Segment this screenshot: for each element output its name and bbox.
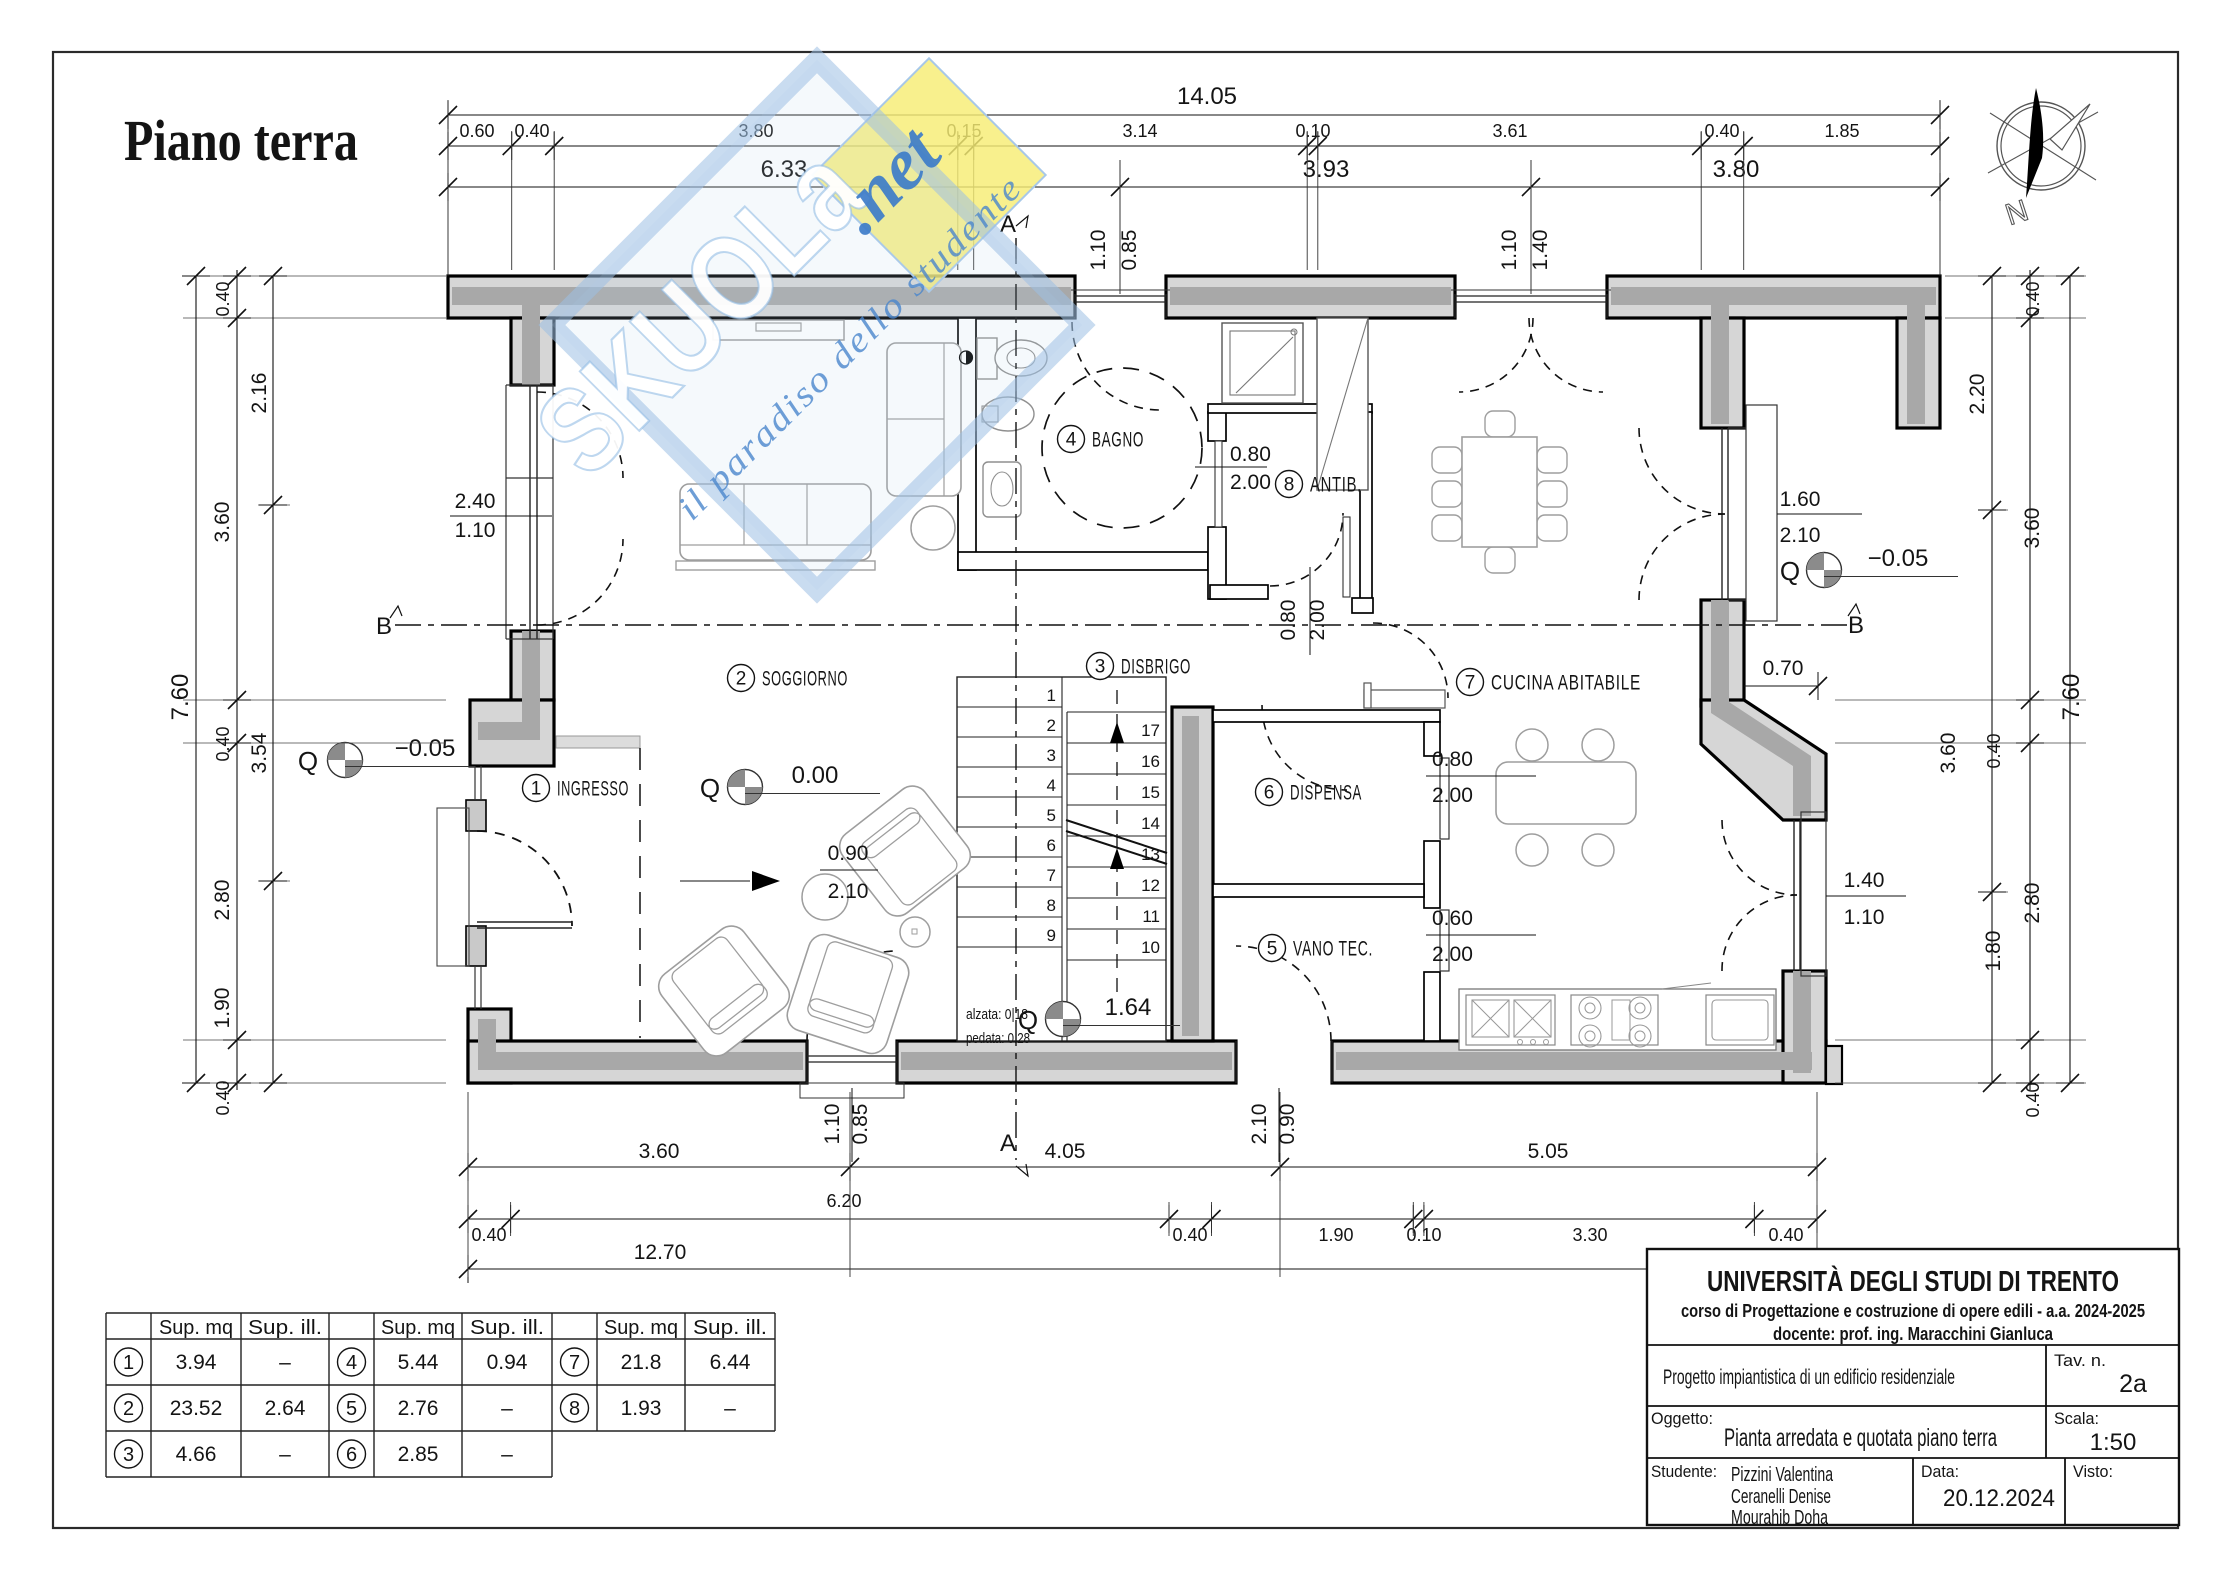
svg-text:14: 14 xyxy=(1141,814,1160,833)
svg-text:2.10: 2.10 xyxy=(828,880,869,903)
svg-text:1.60: 1.60 xyxy=(1780,488,1821,511)
svg-text:SOGGIORNO: SOGGIORNO xyxy=(762,668,848,691)
svg-text:Pizzini Valentina: Pizzini Valentina xyxy=(1731,1464,1834,1486)
svg-text:1.90: 1.90 xyxy=(1318,1225,1353,1245)
svg-text:2.76: 2.76 xyxy=(398,1397,439,1420)
svg-text:6: 6 xyxy=(1047,836,1056,855)
svg-text:4.66: 4.66 xyxy=(176,1443,217,1466)
svg-text:0.94: 0.94 xyxy=(487,1351,528,1374)
svg-text:2a: 2a xyxy=(2119,1370,2147,1398)
svg-text:4.05: 4.05 xyxy=(1045,1140,1086,1163)
svg-text:Q: Q xyxy=(1780,556,1800,586)
svg-text:1.90: 1.90 xyxy=(211,988,234,1029)
svg-text:1.40: 1.40 xyxy=(1529,230,1552,271)
svg-text:Q: Q xyxy=(298,746,318,776)
svg-text:0.40: 0.40 xyxy=(1984,733,2004,768)
svg-text:Data:: Data: xyxy=(1921,1462,1959,1481)
svg-text:5: 5 xyxy=(346,1398,357,1420)
svg-text:21.8: 21.8 xyxy=(621,1351,662,1374)
svg-text:3: 3 xyxy=(1047,746,1056,765)
svg-text:0.40: 0.40 xyxy=(2023,281,2043,316)
svg-text:2: 2 xyxy=(736,669,747,690)
svg-text:0.40: 0.40 xyxy=(1172,1225,1207,1245)
svg-text:0.40: 0.40 xyxy=(471,1225,506,1245)
svg-text:Oggetto:: Oggetto: xyxy=(1651,1409,1713,1428)
svg-text:–: – xyxy=(724,1397,736,1420)
svg-text:–: – xyxy=(501,1397,513,1420)
svg-text:0.00: 0.00 xyxy=(792,762,839,789)
svg-text:12: 12 xyxy=(1141,876,1160,895)
svg-text:Progetto impiantistica di un e: Progetto impiantistica di un edificio re… xyxy=(1663,1366,1955,1389)
svg-text:B: B xyxy=(376,613,392,640)
svg-text:Visto:: Visto: xyxy=(2073,1462,2113,1481)
svg-text:0.70: 0.70 xyxy=(1763,657,1804,680)
svg-text:2.10: 2.10 xyxy=(1780,524,1821,547)
svg-text:7: 7 xyxy=(1465,673,1476,694)
svg-text:VANO TEC.: VANO TEC. xyxy=(1293,938,1373,961)
svg-text:2.85: 2.85 xyxy=(398,1443,439,1466)
svg-text:2.00: 2.00 xyxy=(1230,471,1271,494)
svg-text:ANTIB.: ANTIB. xyxy=(1310,474,1362,497)
svg-text:0.85: 0.85 xyxy=(1118,230,1141,271)
svg-text:5.44: 5.44 xyxy=(398,1351,439,1374)
svg-text:2.16: 2.16 xyxy=(248,373,271,414)
svg-text:alzata: 0|18: alzata: 0|18 xyxy=(966,1006,1028,1023)
svg-text:3.94: 3.94 xyxy=(176,1351,217,1374)
svg-text:1.85: 1.85 xyxy=(1824,121,1859,141)
svg-text:20.12.2024: 20.12.2024 xyxy=(1943,1485,2055,1512)
svg-text:1.10: 1.10 xyxy=(1844,906,1885,929)
svg-text:12.70: 12.70 xyxy=(634,1241,687,1264)
svg-text:–: – xyxy=(279,1351,291,1374)
svg-text:DISBRIGO: DISBRIGO xyxy=(1121,656,1191,679)
svg-text:23.52: 23.52 xyxy=(170,1397,223,1420)
svg-text:1:50: 1:50 xyxy=(2090,1429,2137,1456)
svg-text:0.40: 0.40 xyxy=(2023,1082,2043,1117)
svg-text:0.80: 0.80 xyxy=(1230,443,1271,466)
svg-text:0.85: 0.85 xyxy=(849,1104,872,1145)
svg-text:Sup. mq: Sup. mq xyxy=(381,1317,455,1339)
svg-text:3: 3 xyxy=(123,1444,134,1466)
svg-text:Sup. ill.: Sup. ill. xyxy=(470,1317,544,1339)
svg-text:1: 1 xyxy=(1047,686,1056,705)
svg-text:2.10: 2.10 xyxy=(1248,1104,1271,1145)
svg-text:3.61: 3.61 xyxy=(1492,121,1527,141)
svg-text:0.40: 0.40 xyxy=(1768,1225,1803,1245)
svg-text:3.80: 3.80 xyxy=(1713,156,1760,183)
svg-text:0.90: 0.90 xyxy=(1276,1104,1299,1145)
svg-text:1: 1 xyxy=(531,779,542,800)
svg-text:4: 4 xyxy=(346,1352,357,1374)
svg-text:2.20: 2.20 xyxy=(1966,374,1989,415)
svg-text:BAGNO: BAGNO xyxy=(1092,429,1144,452)
svg-text:A: A xyxy=(1000,1130,1016,1157)
svg-text:Sup. ill.: Sup. ill. xyxy=(693,1317,767,1339)
svg-text:DISPENSA: DISPENSA xyxy=(1290,782,1362,805)
svg-text:Scala:: Scala: xyxy=(2054,1409,2099,1428)
svg-text:2.80: 2.80 xyxy=(211,880,234,921)
svg-text:1.40: 1.40 xyxy=(1844,869,1885,892)
svg-text:UNIVERSITÀ DEGLI STUDI DI TRE: UNIVERSITÀ DEGLI STUDI DI TRENTO xyxy=(1707,1264,2119,1298)
svg-text:Sup. mq: Sup. mq xyxy=(604,1317,678,1339)
svg-text:Studente:: Studente: xyxy=(1651,1462,1717,1481)
svg-text:5.05: 5.05 xyxy=(1528,1140,1569,1163)
svg-text:1.10: 1.10 xyxy=(455,519,496,542)
svg-text:4: 4 xyxy=(1047,776,1056,795)
svg-text:7: 7 xyxy=(1047,866,1056,885)
svg-text:11: 11 xyxy=(1142,907,1160,926)
svg-text:0.90: 0.90 xyxy=(828,842,869,865)
svg-text:docente: prof. ing. Maracchini: docente: prof. ing. Maracchini Gianluca xyxy=(1773,1324,2054,1344)
svg-text:−0.05: −0.05 xyxy=(1868,545,1929,572)
svg-text:1: 1 xyxy=(123,1352,134,1374)
svg-text:1.93: 1.93 xyxy=(621,1397,662,1420)
svg-text:0.10: 0.10 xyxy=(1295,121,1330,141)
svg-text:0.60: 0.60 xyxy=(1432,907,1473,930)
svg-text:3.54: 3.54 xyxy=(248,732,271,773)
svg-text:2.00: 2.00 xyxy=(1432,784,1473,807)
svg-text:0.40: 0.40 xyxy=(213,1080,233,1115)
svg-text:0.40: 0.40 xyxy=(514,121,549,141)
svg-text:8: 8 xyxy=(1284,475,1295,496)
svg-text:3.93: 3.93 xyxy=(1303,156,1350,183)
svg-text:7.60: 7.60 xyxy=(167,674,194,721)
svg-text:Sup. mq: Sup. mq xyxy=(159,1317,233,1339)
svg-text:CUCINA ABITABILE: CUCINA ABITABILE xyxy=(1491,672,1641,695)
svg-text:16: 16 xyxy=(1141,752,1160,771)
svg-text:2: 2 xyxy=(1047,716,1056,735)
svg-text:9: 9 xyxy=(1047,926,1056,945)
svg-text:B: B xyxy=(1848,612,1864,639)
svg-text:8: 8 xyxy=(569,1398,580,1420)
svg-text:7.60: 7.60 xyxy=(2058,674,2085,721)
svg-text:Ceranelli Denise: Ceranelli Denise xyxy=(1731,1486,1831,1508)
svg-text:3.60: 3.60 xyxy=(2021,508,2044,549)
svg-text:0.60: 0.60 xyxy=(459,121,494,141)
svg-text:0.80: 0.80 xyxy=(1277,600,1300,641)
svg-text:2.40: 2.40 xyxy=(455,490,496,513)
svg-text:8: 8 xyxy=(1047,896,1056,915)
svg-text:INGRESSO: INGRESSO xyxy=(557,778,629,801)
svg-text:6: 6 xyxy=(346,1444,357,1466)
svg-text:2.00: 2.00 xyxy=(1306,600,1329,641)
svg-text:3: 3 xyxy=(1095,657,1106,678)
svg-text:15: 15 xyxy=(1141,783,1160,802)
svg-text:Piano terra: Piano terra xyxy=(124,108,358,173)
svg-text:–: – xyxy=(501,1443,513,1466)
svg-text:2.00: 2.00 xyxy=(1432,943,1473,966)
svg-text:−0.05: −0.05 xyxy=(395,735,456,762)
svg-text:3.60: 3.60 xyxy=(1937,733,1960,774)
svg-text:6.20: 6.20 xyxy=(826,1191,861,1211)
svg-text:10: 10 xyxy=(1141,938,1160,957)
svg-text:2.64: 2.64 xyxy=(265,1397,306,1420)
svg-text:0.80: 0.80 xyxy=(1432,748,1473,771)
svg-text:2.80: 2.80 xyxy=(2021,883,2044,924)
svg-text:3.14: 3.14 xyxy=(1122,121,1157,141)
svg-text:4: 4 xyxy=(1066,430,1077,451)
svg-text:Tav. n.: Tav. n. xyxy=(2054,1351,2106,1370)
svg-text:3.60: 3.60 xyxy=(639,1140,680,1163)
svg-text:Pianta arredata e quotata pian: Pianta arredata e quotata piano terra xyxy=(1724,1424,1997,1452)
svg-text:0.40: 0.40 xyxy=(213,281,233,316)
svg-text:1.10: 1.10 xyxy=(1498,230,1521,271)
svg-text:–: – xyxy=(279,1443,291,1466)
svg-text:1.80: 1.80 xyxy=(1982,931,2005,972)
svg-text:corso di Progettazione e costr: corso di Progettazione e costruzione di … xyxy=(1681,1301,2145,1321)
svg-text:5: 5 xyxy=(1267,939,1278,960)
svg-text:7: 7 xyxy=(569,1352,580,1374)
svg-text:6.44: 6.44 xyxy=(710,1351,751,1374)
svg-text:2: 2 xyxy=(123,1398,134,1420)
svg-text:Sup. ill.: Sup. ill. xyxy=(248,1317,322,1339)
svg-text:14.05: 14.05 xyxy=(1177,83,1237,110)
svg-text:3.30: 3.30 xyxy=(1572,1225,1607,1245)
svg-text:17: 17 xyxy=(1141,721,1160,740)
svg-text:6: 6 xyxy=(1264,783,1275,804)
svg-text:1.64: 1.64 xyxy=(1105,994,1152,1021)
svg-text:0.40: 0.40 xyxy=(1704,121,1739,141)
svg-text:3.60: 3.60 xyxy=(211,502,234,543)
svg-text:pedata: 0.28: pedata: 0.28 xyxy=(966,1030,1030,1047)
svg-text:1.10: 1.10 xyxy=(821,1104,844,1145)
svg-text:5: 5 xyxy=(1047,806,1056,825)
svg-text:1.10: 1.10 xyxy=(1087,230,1110,271)
svg-text:Mourahib Doha: Mourahib Doha xyxy=(1731,1507,1829,1529)
svg-text:Q: Q xyxy=(700,773,720,803)
svg-text:0.40: 0.40 xyxy=(213,726,233,761)
